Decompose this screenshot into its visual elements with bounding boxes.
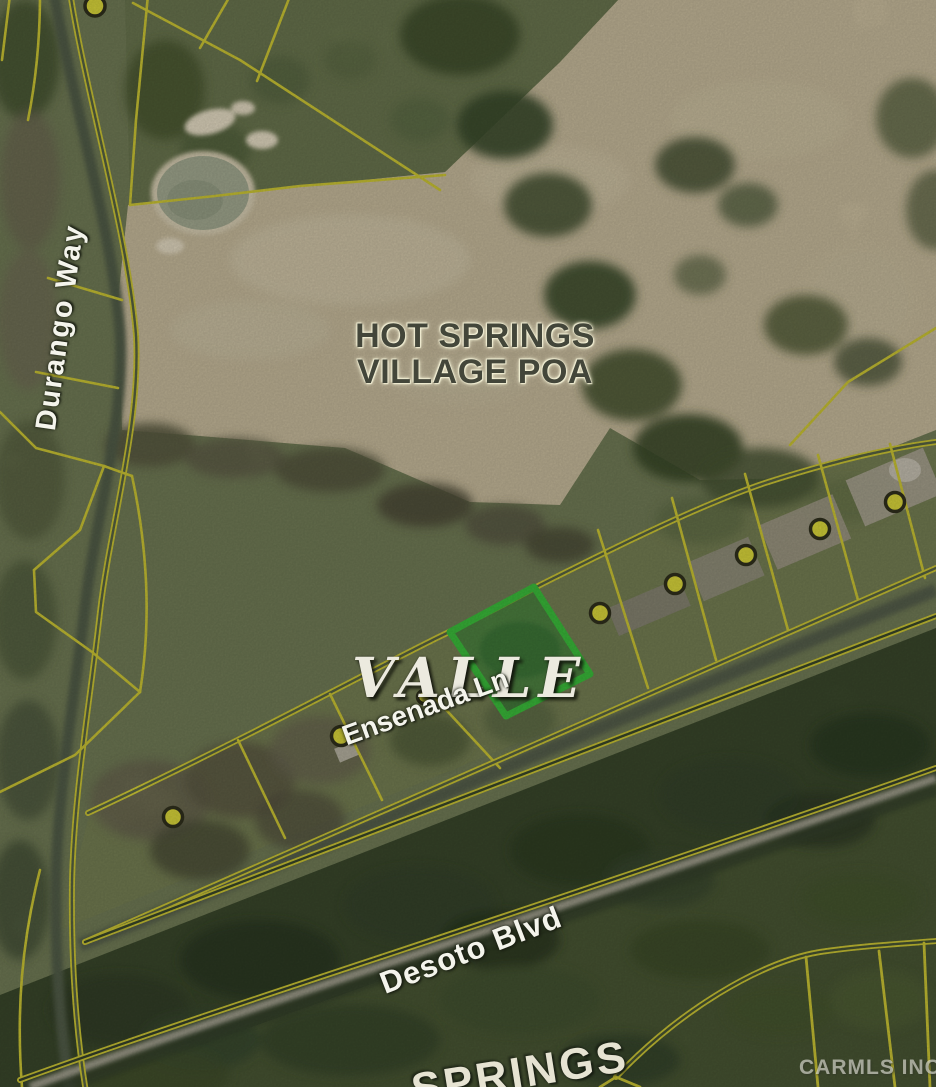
aerial-imagery [0, 0, 936, 1087]
map-viewport[interactable]: HOT SPRINGS VILLAGE POA VALLE Ensenada L… [0, 0, 936, 1087]
imagery-texture [0, 0, 936, 1087]
